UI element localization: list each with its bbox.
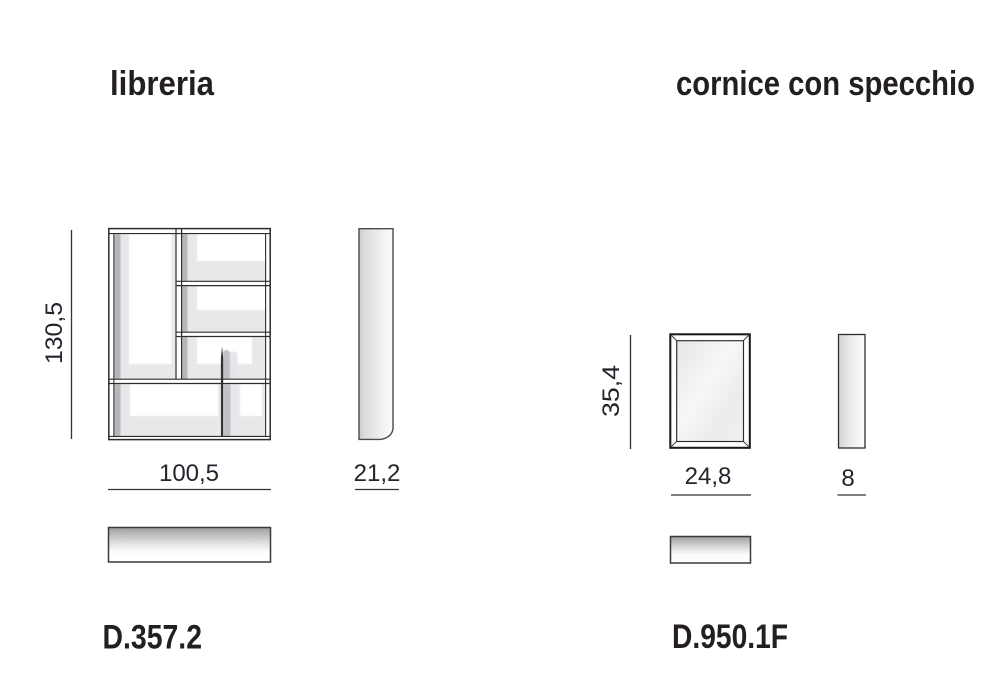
svg-text:24,8: 24,8	[685, 463, 732, 490]
svg-text:libreria: libreria	[110, 65, 215, 103]
svg-text:D.357.2: D.357.2	[103, 619, 203, 657]
svg-text:D.950.1F: D.950.1F	[672, 618, 788, 656]
svg-text:100,5: 100,5	[159, 460, 219, 487]
svg-text:cornice con specchio: cornice con specchio	[676, 65, 975, 103]
svg-text:130,5: 130,5	[41, 302, 68, 364]
svg-text:8: 8	[841, 465, 854, 492]
svg-text:35,4: 35,4	[598, 365, 625, 417]
svg-text:21,2: 21,2	[354, 460, 401, 487]
